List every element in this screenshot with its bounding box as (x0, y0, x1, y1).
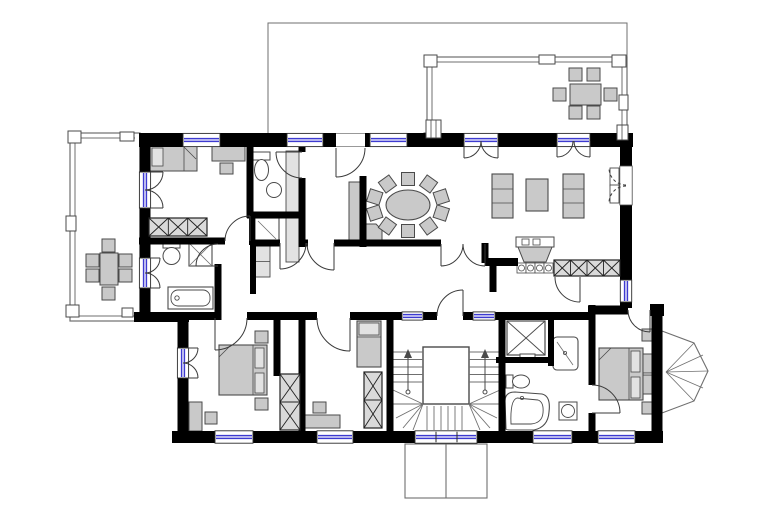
terrace-right-chair (569, 106, 582, 119)
terrace-left-chair (119, 269, 132, 282)
wc-cabinet (286, 151, 299, 262)
window-stair-inner-2 (473, 312, 495, 320)
stove-burner (537, 265, 543, 271)
stove-burner (546, 265, 552, 271)
kitchen-knob (522, 239, 529, 245)
terrace-left-post (122, 308, 133, 317)
bed-lower-left-pillow (255, 348, 264, 368)
terrace-right-table (570, 84, 601, 105)
terrace-right-chair (587, 106, 600, 119)
wc-toilet-tank (253, 152, 270, 160)
bed-upper-left-pillow (152, 148, 163, 166)
terrace-left-chair (86, 254, 99, 267)
window-top-1 (183, 133, 220, 146)
wc-sink (267, 183, 282, 198)
chair-room2 (313, 402, 326, 413)
window-bottom-1 (215, 431, 253, 443)
bath2-toilet (513, 375, 530, 388)
bath-toilet (163, 248, 180, 265)
coffee-table (526, 179, 548, 211)
terrace-left-post (120, 132, 134, 141)
terrace-right-post (539, 55, 555, 64)
dining-table (386, 190, 430, 220)
terrace-left-table (100, 253, 118, 285)
terrace-left-post (68, 131, 81, 143)
stove-burner (528, 265, 534, 271)
terrace-right-chair (587, 68, 600, 81)
sofa-left (492, 174, 513, 218)
window-bottom-2 (317, 431, 353, 443)
bed-lower-left-pillow (255, 373, 264, 393)
bed-master-pillow (631, 377, 640, 398)
terrace-left-chair (119, 254, 132, 267)
terrace-left-chair (102, 239, 115, 252)
stair-core (423, 347, 469, 404)
dining-chair (402, 173, 415, 186)
window-bottom-stair (415, 431, 477, 443)
dining-chair (402, 225, 415, 238)
roof-post (617, 125, 628, 140)
window-stair-inner-1 (402, 312, 423, 320)
window-right (620, 280, 631, 302)
floor-plan-page (0, 0, 768, 520)
dresser-lower-left (189, 402, 202, 431)
terrace-right-post (612, 55, 626, 67)
terrace-right-post (619, 95, 628, 110)
window-top-3 (370, 133, 407, 146)
window-top-2 (287, 133, 323, 146)
french-door-top-2 (557, 133, 590, 146)
bed-master-pillow (631, 351, 640, 372)
shower-lower (553, 337, 578, 370)
nightstand-lower-left (255, 398, 268, 410)
chimney (426, 120, 441, 138)
terrace-left-chair (86, 269, 99, 282)
kitchen-knob (533, 239, 540, 245)
desk-room2 (305, 415, 340, 428)
door-gap (336, 133, 365, 146)
terrace-left-chair (102, 287, 115, 300)
kitchen-sink (518, 247, 552, 262)
bed-room2-pillow (359, 323, 379, 335)
window-bottom-5 (598, 431, 635, 443)
wc-toilet (255, 160, 269, 181)
terrace-left-post (66, 305, 79, 317)
terrace-right-chair (553, 88, 566, 101)
terrace-right-chair (604, 88, 617, 101)
stove-burner (519, 265, 525, 271)
desk-upper-left (212, 146, 245, 161)
window-bottom-4 (533, 431, 572, 443)
terrace-left-post (66, 216, 76, 231)
side-table-lower-left (205, 412, 217, 424)
terrace-right-post (424, 55, 437, 67)
floor-plan-drawing (0, 0, 768, 520)
bath2-toilet-tank (506, 375, 513, 388)
chair-upper-left (220, 163, 233, 174)
nightstand-lower-left (255, 331, 268, 343)
terrace-right-chair (569, 68, 582, 81)
sofa-right (563, 174, 584, 218)
